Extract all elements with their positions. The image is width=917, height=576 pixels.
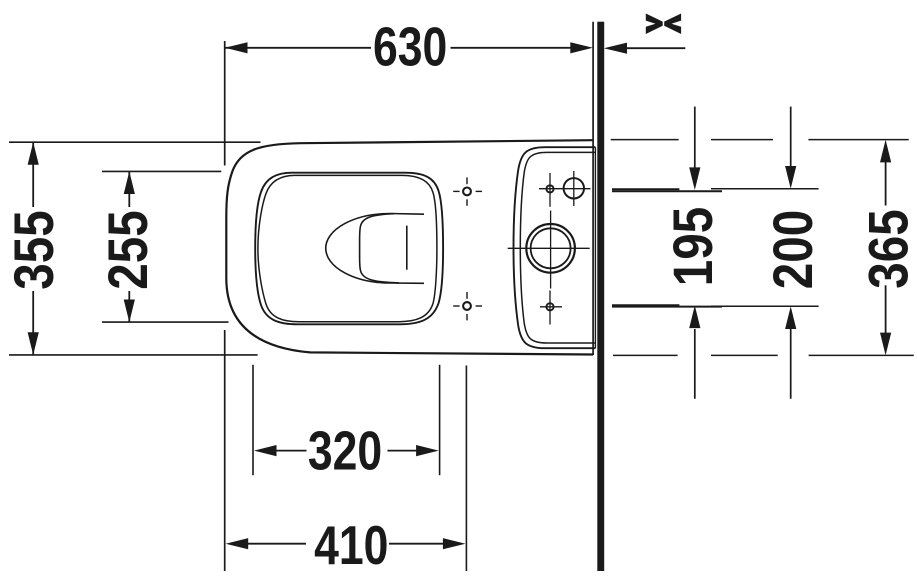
- svg-text:200: 200: [762, 210, 824, 289]
- svg-text:195: 195: [663, 207, 725, 286]
- svg-text:355: 355: [4, 210, 66, 289]
- svg-text:365: 365: [858, 209, 917, 288]
- svg-text:410: 410: [314, 515, 388, 576]
- svg-text:320: 320: [308, 420, 382, 482]
- svg-text:630: 630: [373, 16, 447, 78]
- svg-text:255: 255: [97, 210, 159, 289]
